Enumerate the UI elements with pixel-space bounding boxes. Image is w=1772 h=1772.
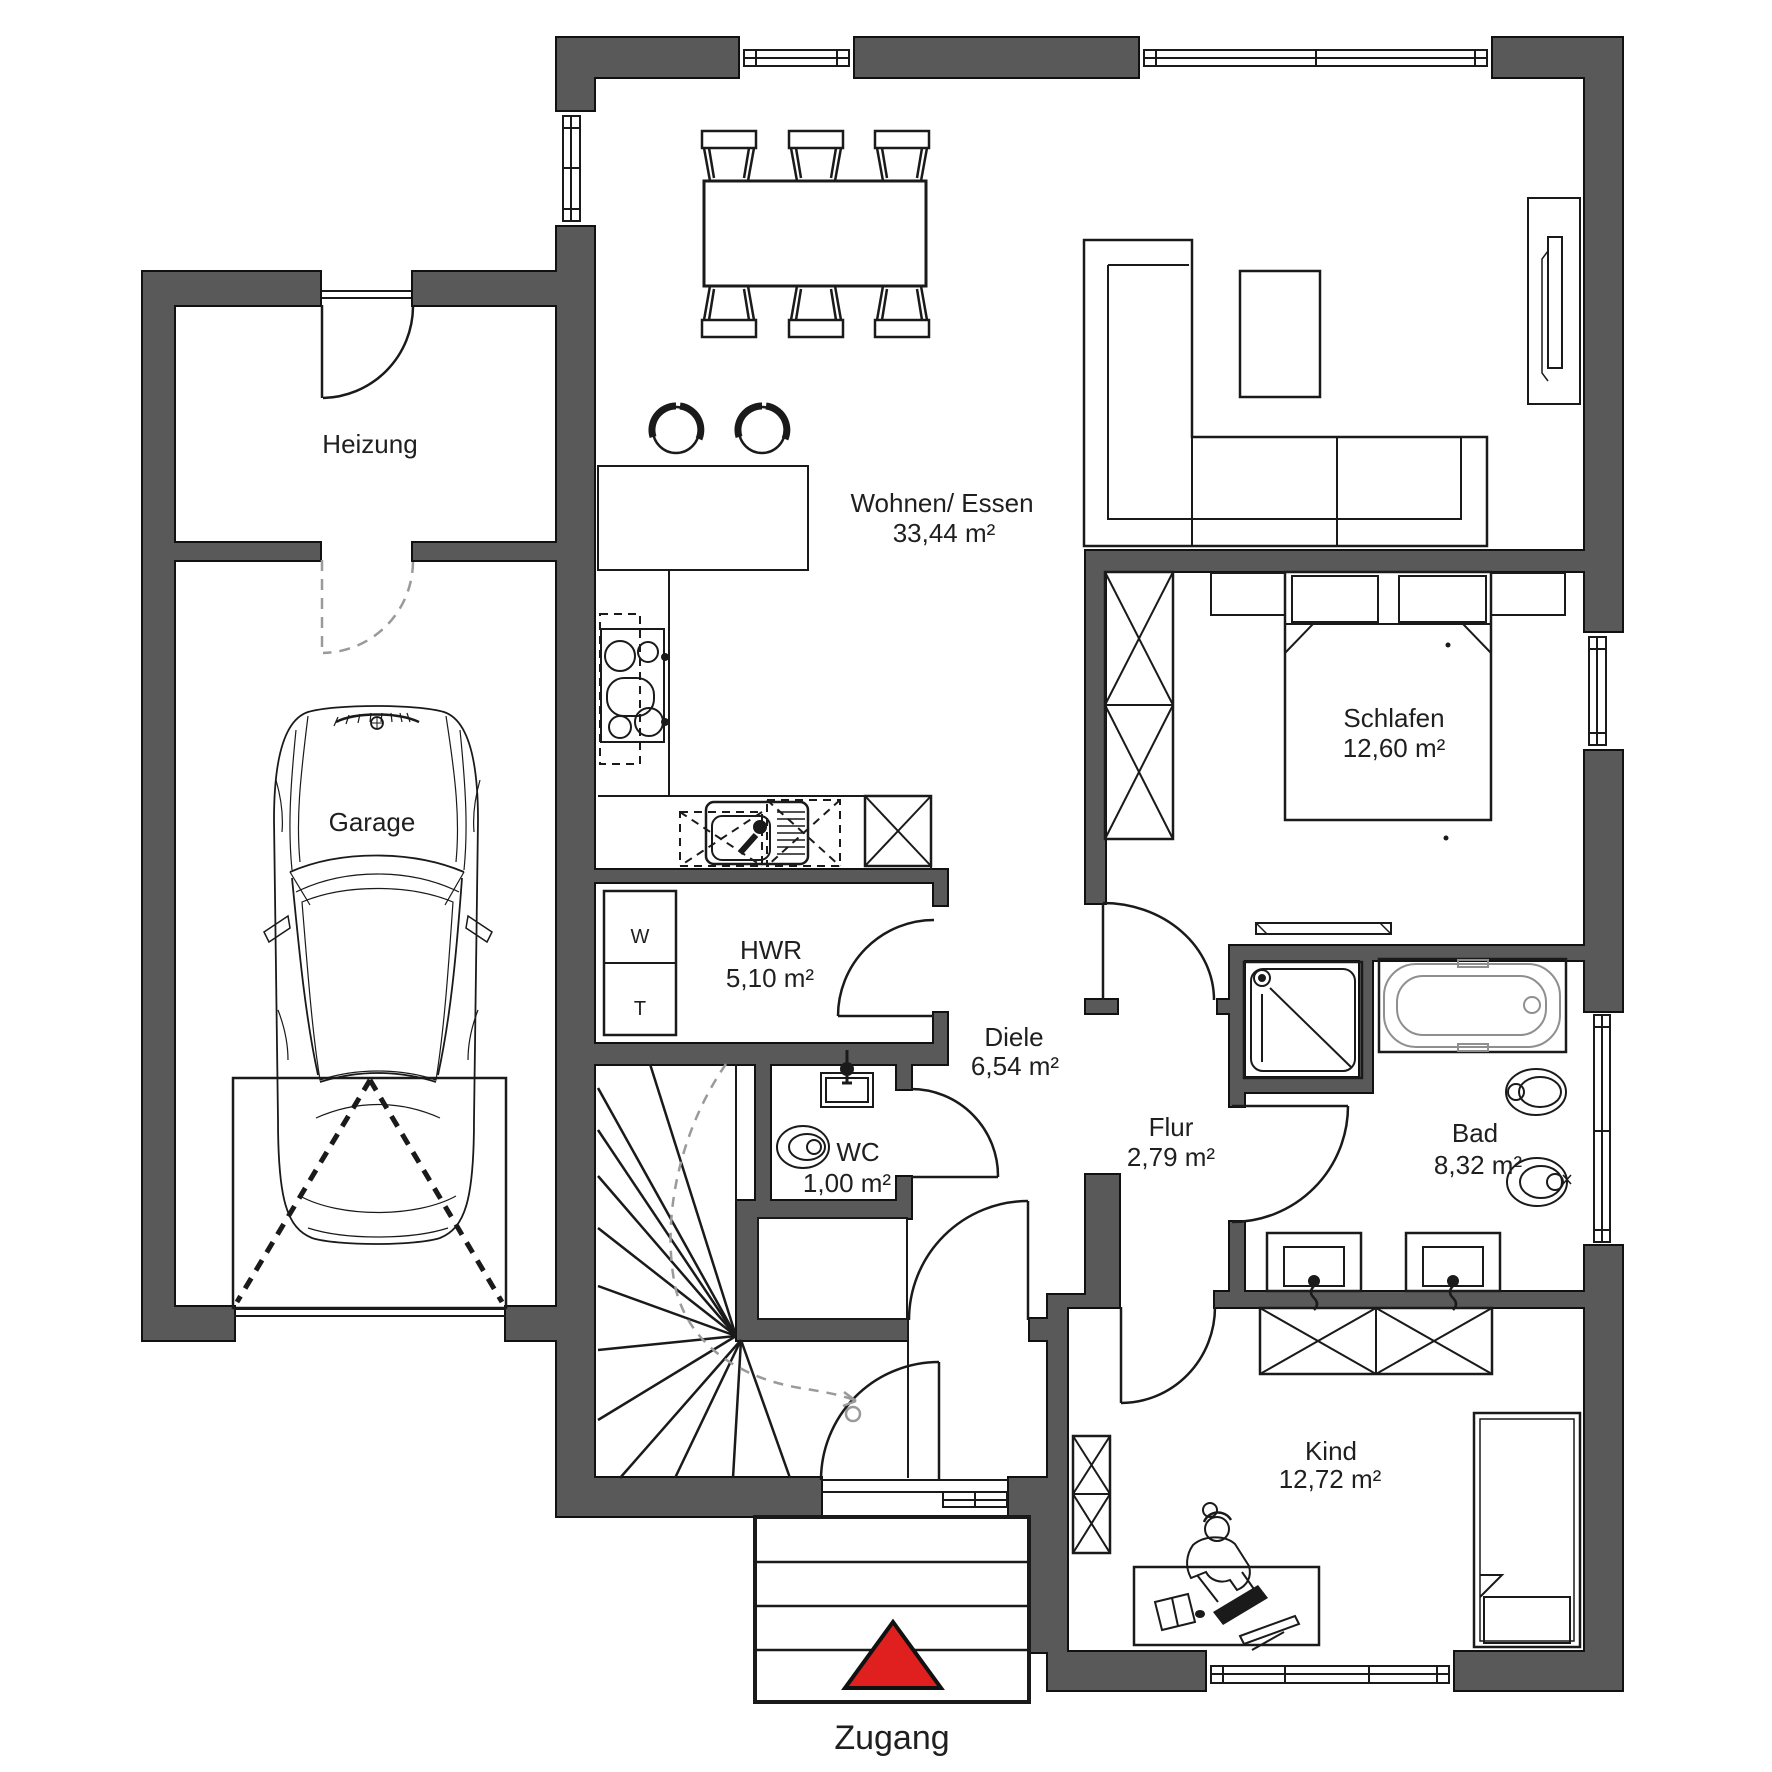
svg-text:Wohnen/ Essen: Wohnen/ Essen — [850, 488, 1033, 518]
svg-text:T: T — [634, 998, 646, 1020]
svg-text:Kind: Kind — [1305, 1436, 1357, 1466]
svg-text:6,54 m²: 6,54 m² — [971, 1051, 1059, 1081]
svg-text:33,44 m²: 33,44 m² — [893, 518, 996, 548]
svg-text:Garage: Garage — [329, 807, 416, 837]
svg-text:Diele: Diele — [984, 1022, 1043, 1052]
svg-text:2,79 m²: 2,79 m² — [1127, 1142, 1215, 1172]
svg-text:HWR: HWR — [740, 935, 802, 965]
svg-text:Bad: Bad — [1452, 1118, 1498, 1148]
svg-text:1,00 m²: 1,00 m² — [803, 1168, 891, 1198]
svg-text:Heizung: Heizung — [322, 429, 417, 459]
svg-text:12,60 m²: 12,60 m² — [1343, 733, 1446, 763]
svg-text:W: W — [631, 926, 650, 948]
svg-text:Zugang: Zugang — [834, 1719, 949, 1757]
svg-text:12,72 m²: 12,72 m² — [1279, 1464, 1382, 1494]
svg-text:WC: WC — [836, 1137, 879, 1167]
svg-text:Schlafen: Schlafen — [1343, 703, 1444, 733]
svg-text:5,10 m²: 5,10 m² — [726, 963, 814, 993]
svg-text:8,32 m²: 8,32 m² — [1434, 1150, 1522, 1180]
svg-text:Flur: Flur — [1149, 1112, 1194, 1142]
